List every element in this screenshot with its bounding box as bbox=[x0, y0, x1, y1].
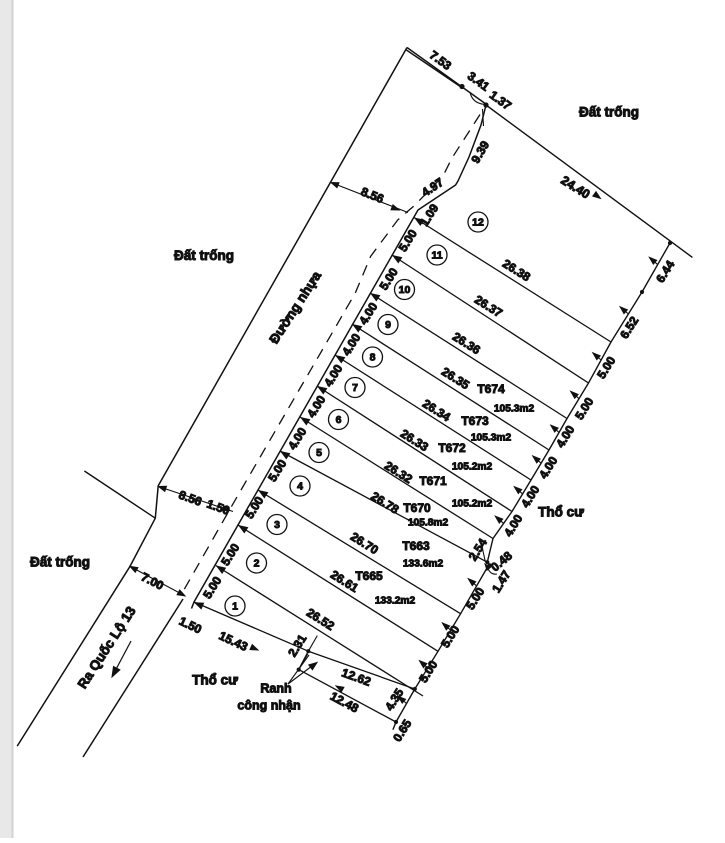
svg-text:5: 5 bbox=[316, 447, 322, 459]
svg-text:9: 9 bbox=[385, 319, 391, 331]
svg-text:8: 8 bbox=[370, 351, 376, 363]
svg-text:T673: T673 bbox=[461, 414, 489, 428]
svg-text:công nhận: công nhận bbox=[237, 698, 300, 712]
svg-text:105.2m2: 105.2m2 bbox=[452, 499, 493, 510]
svg-text:6: 6 bbox=[336, 414, 342, 426]
svg-text:133.6m2: 133.6m2 bbox=[403, 559, 444, 570]
svg-text:133.2m2: 133.2m2 bbox=[375, 596, 416, 607]
svg-text:Ranh: Ranh bbox=[260, 681, 291, 695]
svg-text:7: 7 bbox=[352, 382, 358, 394]
svg-text:Thổ cư: Thổ cư bbox=[538, 505, 584, 520]
svg-text:105.3m2: 105.3m2 bbox=[494, 404, 535, 415]
svg-text:Đất trống: Đất trống bbox=[30, 555, 90, 570]
svg-text:12: 12 bbox=[472, 216, 484, 228]
svg-text:Đất trống: Đất trống bbox=[579, 105, 639, 120]
svg-text:1: 1 bbox=[232, 600, 238, 612]
svg-text:105.8m2: 105.8m2 bbox=[408, 518, 449, 529]
svg-text:T663: T663 bbox=[402, 539, 430, 553]
svg-text:4: 4 bbox=[297, 480, 303, 492]
svg-text:2: 2 bbox=[254, 557, 260, 569]
svg-text:T672: T672 bbox=[438, 441, 466, 455]
svg-text:3: 3 bbox=[274, 519, 280, 531]
svg-text:105.2m2: 105.2m2 bbox=[452, 462, 493, 473]
svg-text:Đất trống: Đất trống bbox=[174, 248, 234, 263]
svg-text:10: 10 bbox=[399, 284, 411, 296]
svg-text:11: 11 bbox=[431, 249, 442, 261]
svg-text:T674: T674 bbox=[477, 382, 505, 396]
svg-text:T670: T670 bbox=[403, 501, 431, 515]
svg-text:105.3m2: 105.3m2 bbox=[471, 433, 512, 444]
svg-text:T671: T671 bbox=[419, 474, 447, 488]
svg-text:T665: T665 bbox=[355, 569, 383, 583]
svg-text:Thổ cư: Thổ cư bbox=[192, 673, 238, 688]
